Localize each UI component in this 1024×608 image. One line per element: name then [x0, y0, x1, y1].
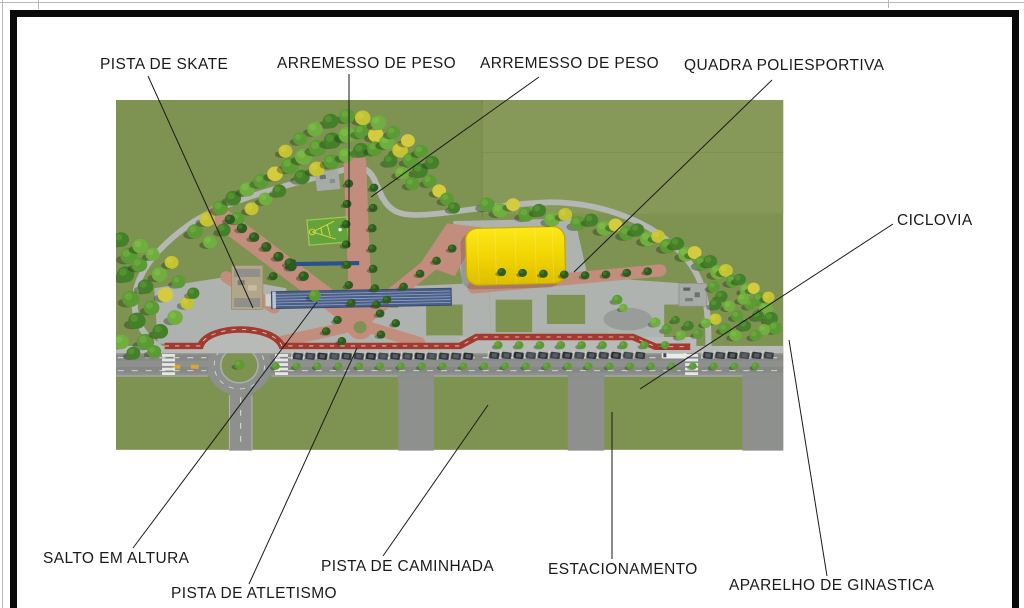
label-pista-de-skate: PISTA DE SKATE	[100, 56, 228, 73]
drawing-sheet: PISTA DE SKATEARREMESSO DE PESOARREMESSO…	[0, 0, 1024, 608]
label-quadra-poliesportiva: QUADRA POLIESPORTIVA	[684, 57, 884, 74]
leader-line-arremesso-de-peso-2	[371, 77, 539, 197]
label-arremesso-de-peso-2: ARREMESSO DE PESO	[480, 55, 659, 72]
leader-line-pista-de-atletismo	[249, 348, 357, 584]
leader-line-ciclovia	[640, 224, 893, 389]
label-salto-em-altura: SALTO EM ALTURA	[43, 550, 189, 567]
leader-line-quadra-poliesportiva	[574, 80, 772, 272]
label-pista-de-caminhada: PISTA DE CAMINHADA	[321, 558, 494, 575]
label-ciclovia: CICLOVIA	[897, 212, 973, 229]
leader-line-salto-em-altura	[133, 302, 317, 548]
label-estacionamento: ESTACIONAMENTO	[548, 561, 698, 578]
leader-line-pista-de-skate	[148, 76, 253, 308]
leader-line-aparelho-de-ginastica	[789, 340, 827, 576]
annotation-overlay	[0, 0, 1024, 608]
label-aparelho-de-ginastica: APARELHO DE GINASTICA	[729, 577, 934, 594]
leader-line-pista-de-caminhada	[383, 405, 488, 556]
label-pista-de-atletismo: PISTA DE ATLETISMO	[171, 585, 337, 602]
label-arremesso-de-peso-1: ARREMESSO DE PESO	[277, 55, 456, 72]
